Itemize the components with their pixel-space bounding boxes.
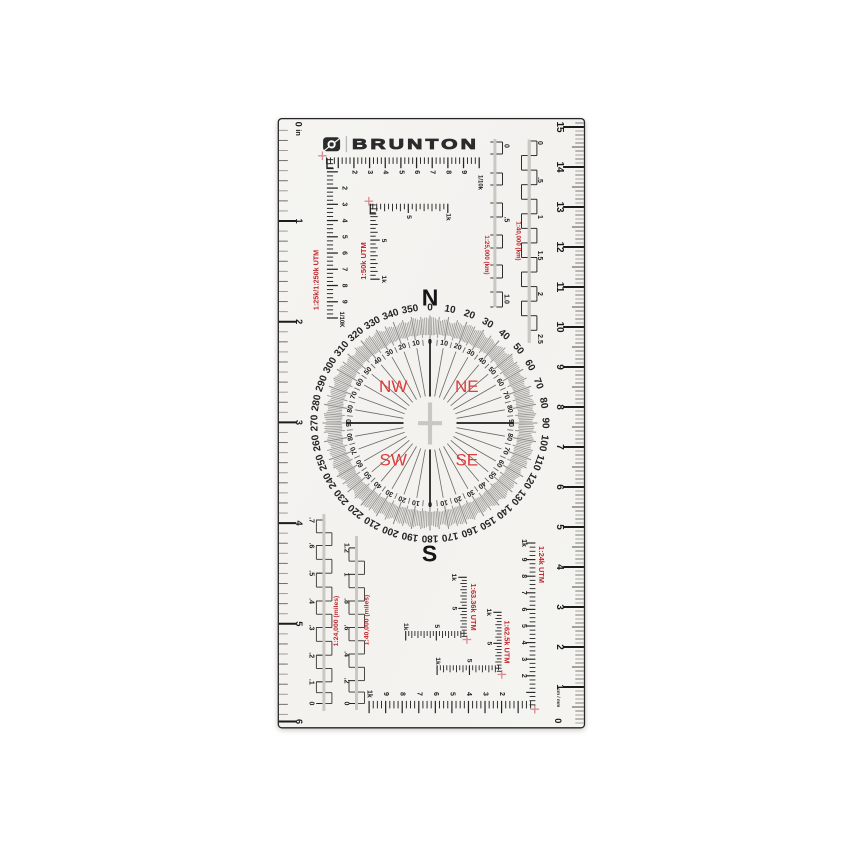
svg-text:1:50k UTM: 1:50k UTM — [359, 242, 368, 280]
svg-text:.6: .6 — [342, 625, 349, 631]
svg-text:5: 5 — [405, 215, 412, 219]
svg-text:.4: .4 — [342, 651, 349, 657]
svg-text:15: 15 — [554, 121, 565, 133]
svg-text:1:40,000 (km): 1:40,000 (km) — [514, 221, 521, 260]
svg-text:NW: NW — [379, 377, 407, 396]
svg-text:80: 80 — [505, 405, 513, 414]
svg-text:1.2: 1.2 — [342, 543, 349, 553]
svg-text:3: 3 — [554, 604, 565, 610]
svg-text:2: 2 — [350, 170, 357, 174]
svg-text:1k: 1k — [434, 657, 441, 665]
svg-text:0: 0 — [293, 122, 303, 127]
svg-text:.8: .8 — [342, 598, 349, 604]
svg-text:5: 5 — [294, 621, 304, 626]
svg-text:1:40,000 (miles): 1:40,000 (miles) — [364, 595, 371, 646]
svg-text:1k: 1k — [402, 623, 409, 631]
svg-text:3: 3 — [520, 657, 527, 661]
svg-text:1k: 1k — [485, 609, 492, 617]
svg-text:S: S — [422, 541, 437, 567]
svg-text:4: 4 — [341, 219, 348, 223]
svg-text:9: 9 — [460, 170, 467, 174]
svg-text:0: 0 — [308, 702, 315, 706]
svg-text:90: 90 — [346, 419, 353, 427]
svg-text:4: 4 — [520, 641, 527, 645]
svg-text:2.5: 2.5 — [536, 334, 543, 344]
svg-text:5: 5 — [397, 170, 404, 174]
svg-text:.7: .7 — [308, 517, 315, 523]
svg-text:0: 0 — [536, 141, 543, 145]
svg-text:7: 7 — [520, 591, 527, 595]
svg-text:SE: SE — [455, 450, 478, 469]
svg-text:5: 5 — [520, 624, 527, 628]
svg-text:.2: .2 — [308, 652, 315, 658]
svg-text:.4: .4 — [308, 598, 315, 604]
svg-text:7: 7 — [415, 692, 422, 696]
svg-text:1/10k: 1/10k — [476, 175, 482, 191]
svg-text:3: 3 — [341, 202, 348, 206]
svg-text:5: 5 — [486, 642, 493, 646]
svg-text:2: 2 — [498, 692, 505, 696]
svg-text:.2: .2 — [342, 678, 349, 684]
svg-text:1: 1 — [342, 572, 349, 576]
svg-text:6: 6 — [294, 719, 304, 724]
svg-text:14: 14 — [554, 161, 565, 173]
svg-text:9: 9 — [382, 692, 389, 696]
svg-text:11: 11 — [554, 282, 565, 293]
svg-text:N: N — [422, 285, 439, 311]
svg-text:1:63.36k UTM: 1:63.36k UTM — [469, 583, 478, 630]
svg-text:1: 1 — [536, 215, 543, 219]
svg-text:9: 9 — [341, 300, 348, 304]
svg-text:0: 0 — [342, 702, 349, 706]
svg-text:cm / mm: cm / mm — [556, 688, 561, 707]
svg-text:5: 5 — [451, 607, 458, 611]
svg-text:10: 10 — [439, 498, 448, 506]
svg-text:0: 0 — [428, 500, 432, 507]
svg-text:1:62.5k UTM: 1:62.5k UTM — [503, 620, 512, 663]
svg-text:3: 3 — [294, 420, 304, 425]
svg-text:9: 9 — [554, 364, 565, 370]
svg-text:8: 8 — [341, 284, 348, 288]
svg-text:2: 2 — [341, 186, 348, 190]
svg-text:5: 5 — [433, 624, 440, 628]
svg-text:8: 8 — [520, 574, 527, 578]
svg-text:1k: 1k — [380, 275, 387, 283]
svg-text:BRUNTON: BRUNTON — [352, 137, 479, 153]
svg-text:10: 10 — [440, 340, 449, 348]
svg-text:0: 0 — [503, 144, 510, 148]
svg-text:8: 8 — [444, 170, 451, 174]
svg-text:6: 6 — [554, 484, 565, 490]
svg-text:8: 8 — [399, 692, 406, 696]
svg-text:7: 7 — [429, 170, 436, 174]
svg-text:90: 90 — [540, 417, 551, 429]
svg-text:1k: 1k — [444, 213, 451, 221]
svg-text:0: 0 — [553, 718, 563, 723]
svg-text:4: 4 — [382, 170, 389, 174]
svg-text:4: 4 — [465, 692, 472, 696]
svg-text:2: 2 — [536, 292, 543, 296]
svg-text:9: 9 — [520, 558, 527, 562]
svg-text:1.5: 1.5 — [536, 251, 543, 261]
svg-text:4: 4 — [554, 564, 565, 570]
svg-text:0: 0 — [428, 339, 432, 346]
svg-text:6: 6 — [341, 251, 348, 255]
svg-text:3: 3 — [366, 170, 373, 174]
svg-text:80: 80 — [347, 404, 355, 413]
svg-text:1:24,000 (miles): 1:24,000 (miles) — [333, 596, 340, 647]
svg-text:7: 7 — [554, 444, 565, 450]
svg-text:SW: SW — [380, 450, 407, 469]
svg-text:2: 2 — [294, 319, 304, 324]
svg-text:270: 270 — [310, 414, 321, 431]
svg-text:1:25,000 (km): 1:25,000 (km) — [483, 235, 490, 274]
svg-text:1k: 1k — [520, 539, 527, 547]
svg-text:3: 3 — [482, 692, 489, 696]
svg-text:13: 13 — [554, 201, 565, 213]
svg-text:in: in — [294, 129, 303, 136]
svg-text:1: 1 — [294, 218, 304, 223]
svg-text:80: 80 — [505, 433, 513, 442]
svg-text:1k: 1k — [450, 574, 457, 582]
svg-text:4: 4 — [294, 521, 304, 527]
svg-text:.6: .6 — [308, 543, 315, 549]
svg-text:.5: .5 — [536, 177, 543, 183]
svg-text:5: 5 — [448, 692, 455, 696]
svg-text:10: 10 — [412, 340, 421, 348]
svg-text:1:25k/1:250k UTM: 1:25k/1:250k UTM — [312, 250, 321, 310]
svg-text:90: 90 — [507, 419, 514, 427]
svg-text:10: 10 — [411, 498, 420, 506]
svg-text:1k: 1k — [366, 690, 373, 698]
svg-text:7: 7 — [341, 267, 348, 271]
svg-text:5: 5 — [341, 235, 348, 239]
svg-text:1/10K: 1/10K — [338, 311, 344, 328]
svg-text:80: 80 — [347, 432, 355, 441]
svg-text:.1: .1 — [308, 679, 315, 685]
svg-text:5: 5 — [380, 239, 387, 243]
svg-text:2: 2 — [554, 644, 565, 650]
svg-text:5: 5 — [466, 659, 473, 663]
svg-text:.5: .5 — [503, 216, 510, 222]
svg-text:NE: NE — [455, 377, 479, 396]
svg-text:1:24k UTM: 1:24k UTM — [537, 546, 546, 583]
svg-text:.3: .3 — [308, 625, 315, 631]
svg-text:.5: .5 — [308, 570, 315, 576]
svg-text:6: 6 — [413, 170, 420, 174]
svg-text:10: 10 — [554, 321, 565, 333]
svg-text:1.0: 1.0 — [503, 294, 510, 304]
svg-text:8: 8 — [554, 404, 565, 410]
svg-text:6: 6 — [432, 692, 439, 696]
svg-text:6: 6 — [520, 607, 527, 611]
svg-text:2: 2 — [520, 674, 527, 678]
svg-text:5: 5 — [554, 524, 565, 530]
svg-text:12: 12 — [554, 241, 565, 253]
